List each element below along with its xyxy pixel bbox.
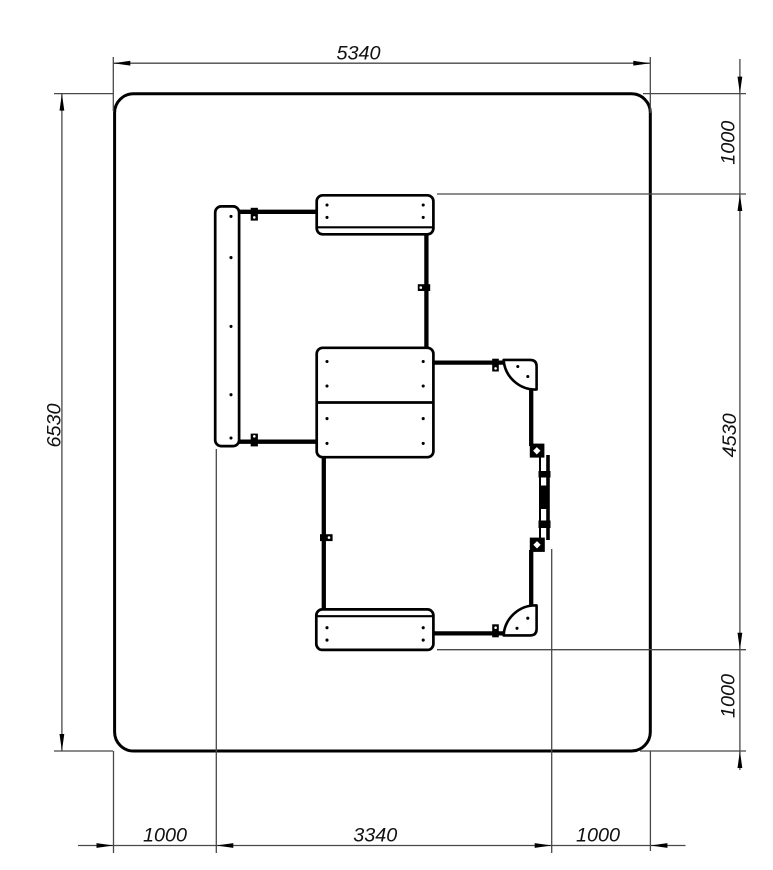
- svg-text:6530: 6530: [44, 403, 66, 447]
- svg-text:4530: 4530: [719, 413, 741, 457]
- svg-text:1000: 1000: [576, 824, 620, 846]
- svg-text:3340: 3340: [353, 824, 397, 846]
- svg-text:5340: 5340: [336, 42, 380, 64]
- svg-text:1000: 1000: [143, 824, 187, 846]
- svg-text:1000: 1000: [718, 674, 740, 718]
- svg-text:1000: 1000: [718, 121, 740, 165]
